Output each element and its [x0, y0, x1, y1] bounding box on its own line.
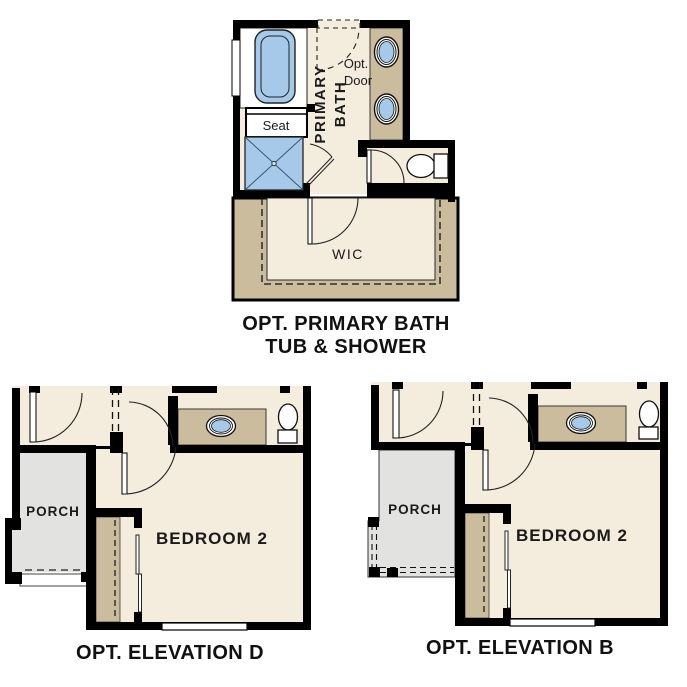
sink-icon	[375, 94, 399, 124]
porch-area	[12, 452, 88, 586]
bathtub-fixture	[240, 28, 307, 108]
sink-icon	[375, 37, 399, 67]
wic-label: WIC	[332, 246, 364, 262]
toilet-icon	[407, 154, 448, 178]
porch-label: PORCH	[388, 502, 442, 517]
seat-label: Seat	[263, 118, 290, 133]
primary-bath-plan: Seat	[228, 12, 468, 314]
primary-bath-caption-line1: OPT. PRIMARY BATH	[178, 313, 514, 336]
primary-bath-label-line1: PRIMARY	[312, 64, 329, 143]
window	[510, 619, 595, 626]
bedroom-label: BEDROOM 2	[156, 529, 268, 548]
porch-step	[20, 574, 88, 586]
window	[232, 40, 240, 96]
toilet-icon	[278, 404, 298, 443]
floorplan-sheet: Seat	[0, 0, 687, 687]
porch-label: PORCH	[26, 504, 80, 519]
elevation-b-plan: PORCH BEDROOM 2	[360, 382, 675, 630]
primary-bath-caption: OPT. PRIMARY BATH TUB & SHOWER	[178, 313, 514, 359]
window	[162, 623, 247, 630]
exterior	[360, 577, 455, 630]
opt-door-label-line2: Door	[344, 73, 373, 88]
opt-door-label-line1: Opt.	[344, 56, 369, 71]
shower-seat: Seat	[246, 108, 307, 137]
bedroom-closet	[96, 517, 120, 622]
sink-icon	[567, 413, 596, 434]
shower-drain	[272, 161, 276, 165]
elevation-d-caption: OPT. ELEVATION D	[18, 642, 322, 665]
shower-fixture	[245, 137, 303, 190]
primary-bath-caption-line2: TUB & SHOWER	[178, 336, 514, 359]
elevation-b-caption: OPT. ELEVATION B	[368, 637, 672, 660]
toilet-icon	[639, 401, 659, 439]
elevation-d-plan: PORCH BEDROOM 2	[5, 386, 320, 634]
bedroom-closet	[465, 513, 489, 618]
bedroom-label: BEDROOM 2	[516, 526, 628, 545]
sink-icon	[207, 416, 236, 437]
